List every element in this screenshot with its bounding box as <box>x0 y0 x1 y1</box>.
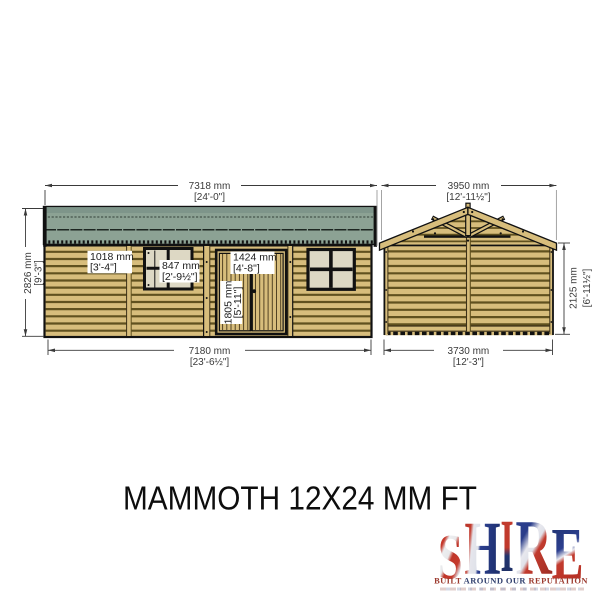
svg-text:[23'-6½"]: [23'-6½"] <box>190 357 230 368</box>
svg-text:[24'-0"]: [24'-0"] <box>194 192 225 203</box>
svg-text:[2'-9½"]: [2'-9½"] <box>162 271 198 283</box>
svg-text:[9'-3"]: [9'-3"] <box>34 260 45 286</box>
svg-text:3950 mm: 3950 mm <box>448 181 490 192</box>
svg-text:[12'-11½"]: [12'-11½"] <box>446 192 490 203</box>
svg-text:[12'-3"]: [12'-3"] <box>453 357 484 368</box>
svg-text:[4'-8"]: [4'-8"] <box>233 262 260 274</box>
svg-text:2826 mm: 2826 mm <box>23 252 34 294</box>
svg-text:2125 mm: 2125 mm <box>569 267 580 309</box>
svg-text:7318 mm: 7318 mm <box>189 181 231 192</box>
svg-text:[3'-4"]: [3'-4"] <box>90 262 117 274</box>
svg-text:MAMMOTH 12X24 MM FT: MAMMOTH 12X24 MM FT <box>123 481 477 518</box>
svg-text:7180 mm: 7180 mm <box>189 346 231 357</box>
svg-text:BUILT AROUND OUR REPUTATION: BUILT AROUND OUR REPUTATION <box>434 576 588 586</box>
svg-text:3730 mm: 3730 mm <box>448 346 490 357</box>
svg-text:[5'-11"]: [5'-11"] <box>232 287 244 319</box>
svg-text:[6'-11½"]: [6'-11½"] <box>582 268 593 307</box>
